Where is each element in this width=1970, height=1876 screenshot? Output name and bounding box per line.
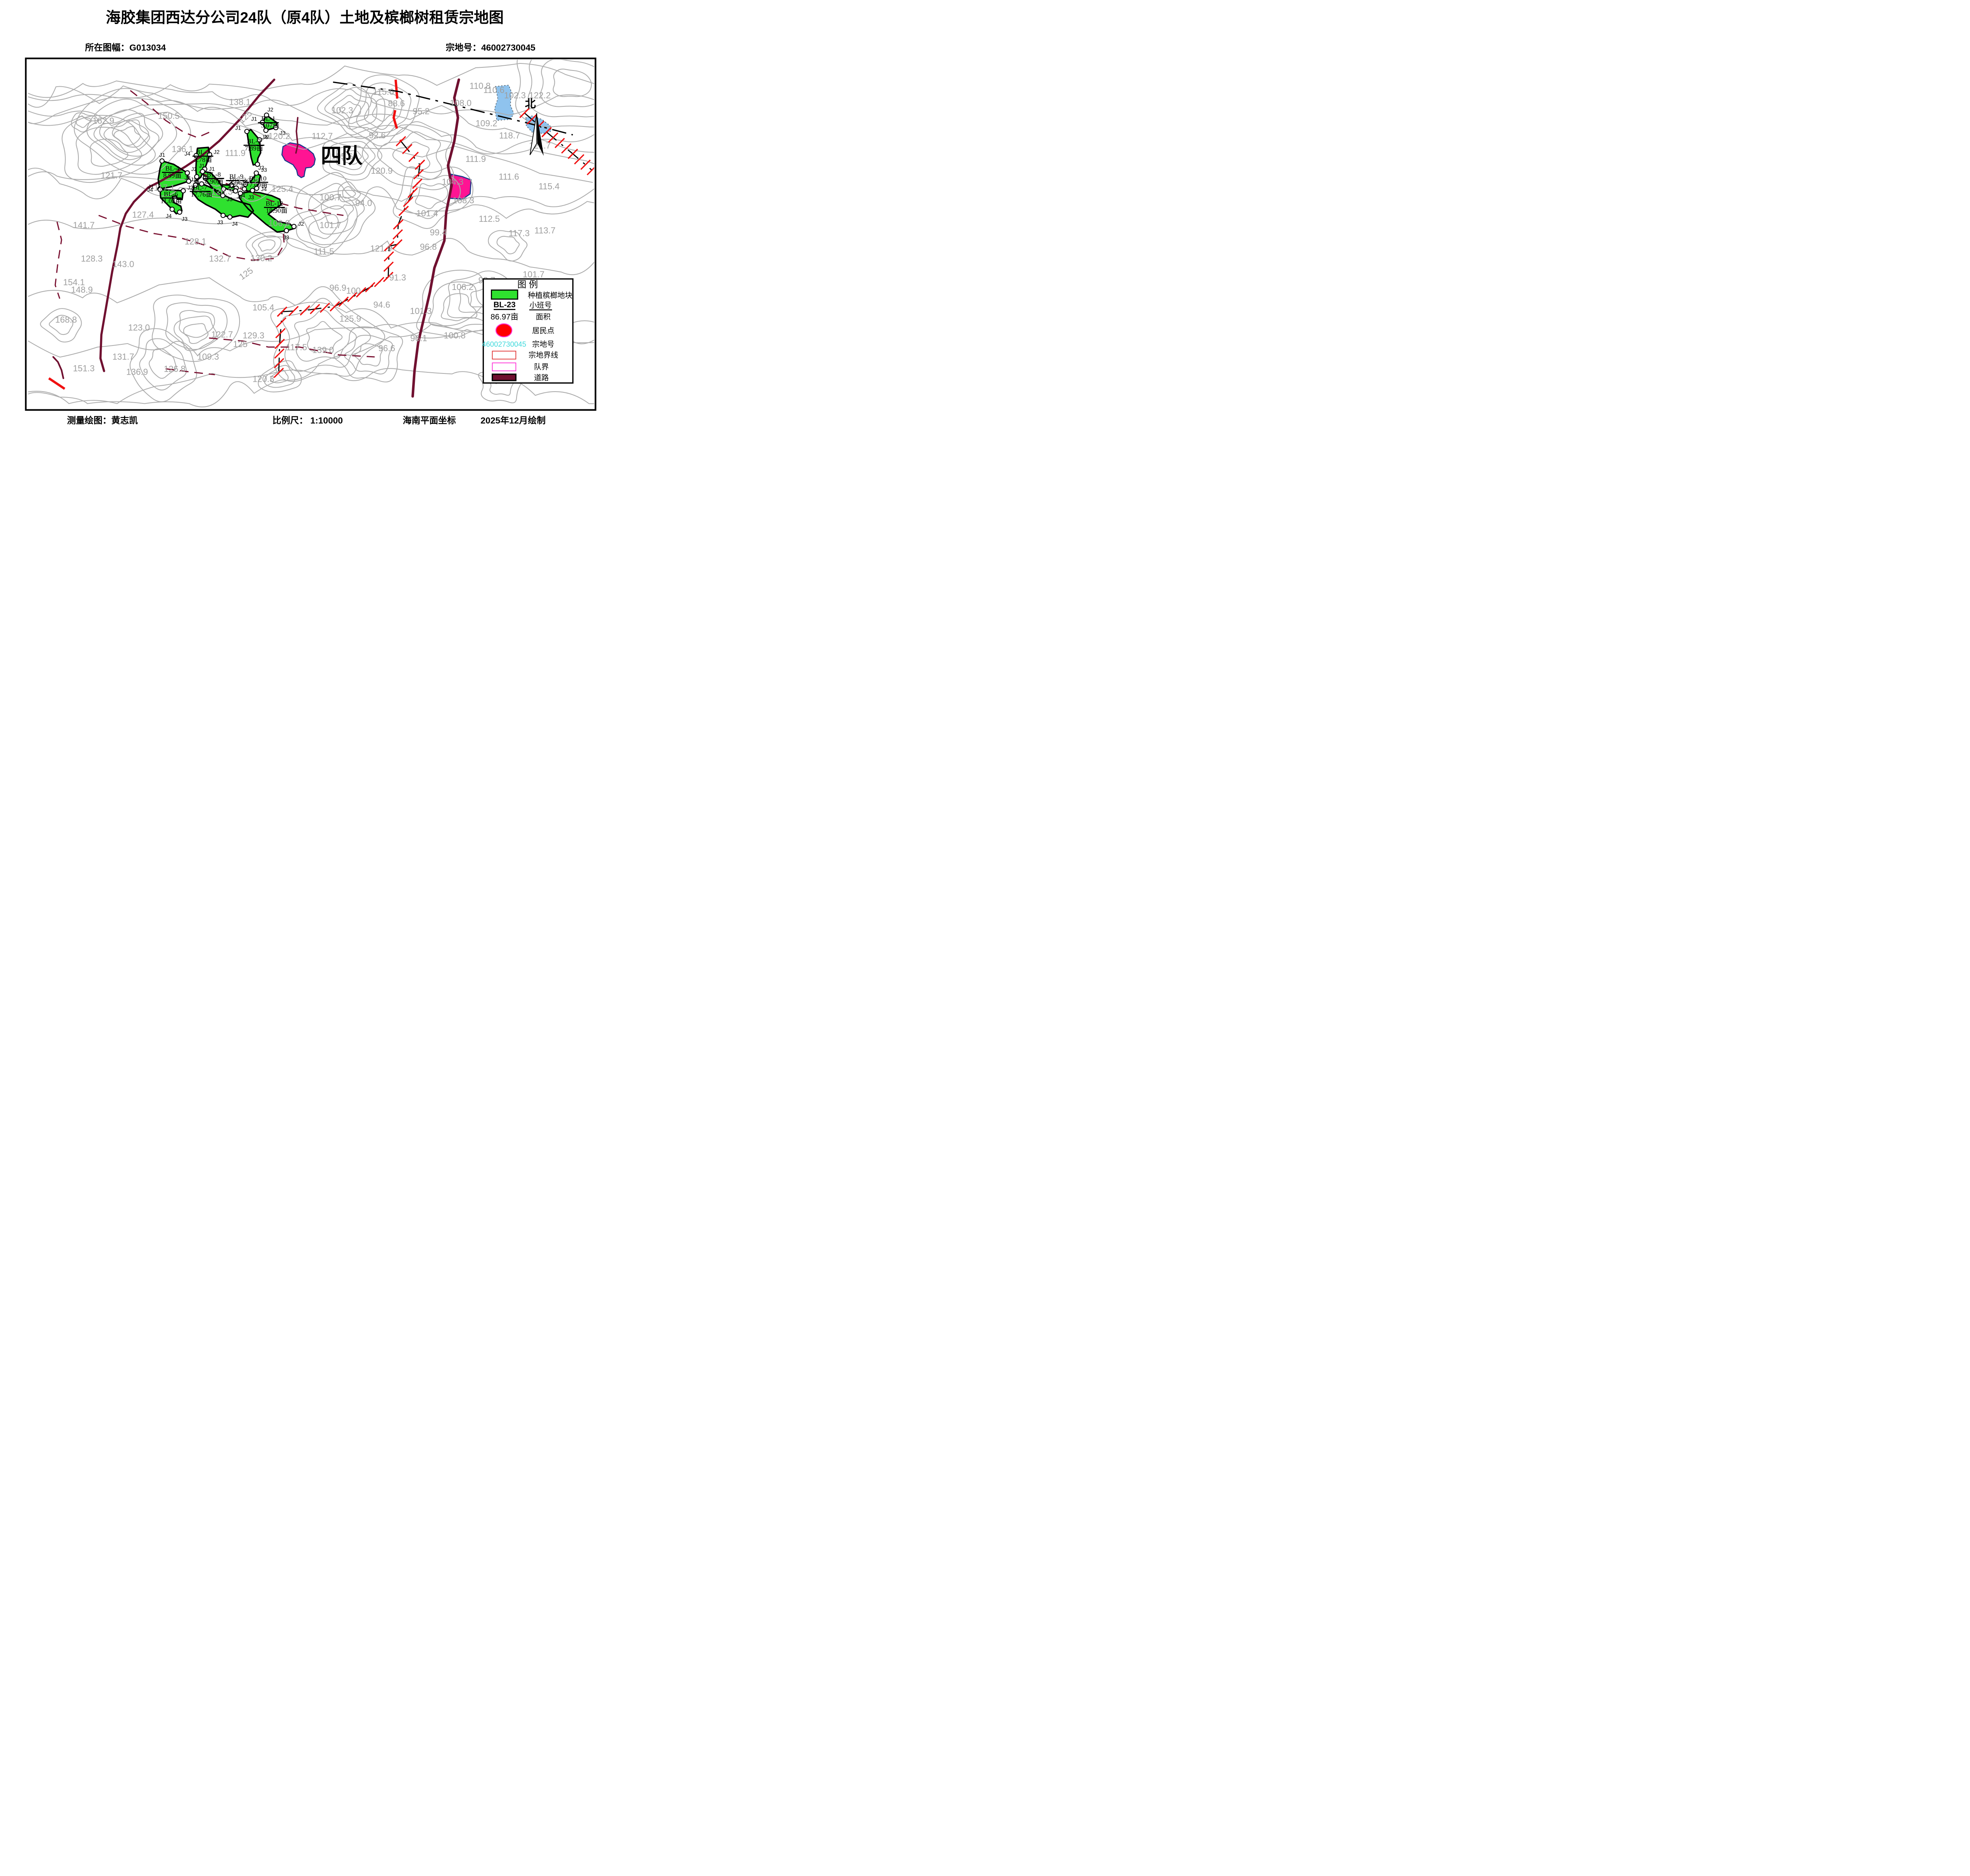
legend-title: 图 例 xyxy=(517,279,538,289)
elevation-label: 136.9 xyxy=(126,367,148,377)
parcel-id-label-BL-8: BL-8 xyxy=(207,171,221,178)
elevation-label: 106.2 xyxy=(452,282,474,292)
elevation-label: 96.1 xyxy=(410,333,427,343)
parcel-id-label-BL-12: BL-12 xyxy=(266,200,283,207)
elevation-label: 148.9 xyxy=(71,285,93,295)
legend-parcelno-label: 宗地号 xyxy=(532,340,555,348)
survey-point-label: J2 xyxy=(298,221,304,227)
elevation-label: 96.8 xyxy=(420,242,437,252)
elevation-label: 100.7 xyxy=(320,193,341,202)
survey-point-label: J3 xyxy=(248,194,254,201)
elevation-label: 111.9 xyxy=(465,154,486,164)
legend-area-label: 面积 xyxy=(536,312,551,321)
elevation-label: 121.2 xyxy=(237,176,259,186)
elevation-label: 92.6 xyxy=(369,130,386,140)
parcel-area-label-BL-2: 7.89亩 xyxy=(245,145,263,152)
elevation-label: 101.4 xyxy=(416,208,438,218)
legend-area-sample: 86.97亩 xyxy=(491,312,519,321)
elevation-label: 101.7 xyxy=(320,220,341,230)
elevation-label: 104.3 xyxy=(442,177,463,187)
elevation-label: 108.0 xyxy=(450,98,472,108)
survey-point-label: J3 xyxy=(182,216,188,223)
parcel-id-label-BL-2: BL-2 xyxy=(247,137,261,145)
elevation-label: 123.0 xyxy=(128,323,150,332)
elevation-label: 129.3 xyxy=(243,331,264,340)
elevation-label: 150.5 xyxy=(158,111,180,121)
elevation-label: 115.4 xyxy=(539,182,560,191)
elevation-label: 168.8 xyxy=(55,315,77,325)
elevation-label: 112.5 xyxy=(479,214,500,224)
legend-boundary-label: 宗地界线 xyxy=(528,351,558,359)
elevation-label: 125.9 xyxy=(339,314,361,324)
elevation-label: 132.7 xyxy=(209,254,231,264)
survey-point-label: J2 xyxy=(214,149,219,156)
elevation-label: 99.4 xyxy=(430,227,447,237)
page-title: 海胶集团西达分公司24队（原4队）土地及槟榔树租赁宗地图 xyxy=(106,9,504,26)
elevation-label: 121.9 xyxy=(370,244,392,254)
survey-point-label: J3 xyxy=(227,196,232,202)
survey-point-BL-6-J3 xyxy=(177,210,182,214)
elevation-label: 102.3 xyxy=(331,106,353,115)
elevation-label: 118.7 xyxy=(499,131,520,141)
elevation-label: 162.9 xyxy=(93,116,114,126)
coordinate-system-label: 海南平面坐标 xyxy=(403,415,456,425)
elevation-label: 111.5 xyxy=(314,247,334,256)
elevation-label: 141.7 xyxy=(73,220,95,230)
elevation-label: 117.3 xyxy=(509,228,530,238)
legend-plot-label: 种植槟榔地块 xyxy=(528,291,572,299)
parcel-map-svg: 海胶集团西达分公司24队（原4队）土地及槟榔树租赁宗地图 所在图幅：G01303… xyxy=(0,0,610,431)
survey-point-BL-7-J4 xyxy=(228,215,232,219)
parcel-area-label-BL-6: 11.03亩 xyxy=(160,197,182,205)
elevation-label: 96.9 xyxy=(329,283,346,293)
legend-team-boundary-label: 队界 xyxy=(534,362,549,371)
elevation-label: 127.4 xyxy=(132,210,154,220)
survey-point-label: J4 xyxy=(232,221,238,227)
elevation-label: 111.6 xyxy=(499,172,519,182)
elevation-label: 143.0 xyxy=(112,259,134,269)
survey-point-label: J2 xyxy=(268,107,273,113)
elevation-label: 139.0 xyxy=(312,345,334,355)
survey-point-BL-8-J1 xyxy=(201,169,205,174)
elevation-label: 91.3 xyxy=(389,273,406,282)
elevation-label: 121.7 xyxy=(100,171,122,180)
elevation-label: 108.3 xyxy=(452,195,474,205)
elevation-label: 126.3 xyxy=(211,187,232,197)
sheet-number-label: 所在图幅：G013034 xyxy=(85,43,166,53)
survey-point-label: J2 xyxy=(191,166,197,173)
elevation-label: 100.8 xyxy=(444,331,465,340)
elevation-label: 112.7 xyxy=(312,131,333,141)
legend: 图 例 种植槟榔地块 BL-23 小班号 86.97亩 面积 居民点 46002… xyxy=(482,279,573,383)
survey-point-BL-12-J2 xyxy=(292,224,296,228)
parcel-area-label-BL-4: 8.99亩 xyxy=(163,172,182,179)
team-four-label: 四队 xyxy=(321,145,362,168)
surveyor-label: 测量绘图：黄志凯 xyxy=(67,415,138,425)
survey-point-BL-4-J1 xyxy=(160,159,164,163)
legend-parcelno-sample: 46002730045 xyxy=(482,340,526,348)
parcel-id-label-BL-1: BL-1 xyxy=(261,115,275,123)
legend-boundary-swatch xyxy=(492,351,516,359)
survey-point-BL-12-J3 xyxy=(284,228,288,233)
elevation-label: 101.7 xyxy=(523,269,545,279)
parcel-area-label-BL-1: 3.07亩 xyxy=(261,122,279,129)
survey-point-BL-10-J3 xyxy=(250,188,255,193)
elevation-label: 111.9 xyxy=(225,148,245,158)
elevation-label: 94.0 xyxy=(355,198,372,208)
elevation-label: 96.6 xyxy=(378,343,395,353)
elevation-label: 88.6 xyxy=(388,98,405,108)
parcel-id-label-BL-3: BL-3 xyxy=(196,149,210,156)
survey-point-BL-7-J3 xyxy=(221,213,225,217)
elevation-label: 101.3 xyxy=(410,306,432,316)
survey-point-label: J1 xyxy=(235,125,241,131)
elevation-label: 122.7 xyxy=(211,330,233,340)
survey-point-label: J3 xyxy=(217,219,223,226)
elevation-label: 100 xyxy=(346,286,361,295)
elevation-label: 128.3 xyxy=(81,254,102,264)
north-label: 北 xyxy=(525,97,536,110)
parcel-area-label-BL-3: 3.78亩 xyxy=(194,156,212,163)
elevation-label: 120.2 xyxy=(268,131,290,141)
survey-point-BL-6-J2 xyxy=(181,189,186,193)
elevation-label: 151.3 xyxy=(73,363,95,373)
elevation-label: 109.2 xyxy=(476,119,497,128)
elevation-label: 115.6 xyxy=(373,87,394,97)
parcel-number-label: 宗地号：46002730045 xyxy=(446,43,535,53)
parcel-area-label-BL-7: 17.76亩 xyxy=(191,191,212,198)
draw-date-label: 2025年12月绘制 xyxy=(481,415,546,425)
parcel-area-label-BL-12: 18.90亩 xyxy=(266,207,288,214)
survey-point-BL-2-J1 xyxy=(245,129,249,134)
elevation-label: 125 xyxy=(233,339,247,349)
elevation-label: 125.4 xyxy=(271,184,293,194)
elevation-label: 117.1 xyxy=(154,183,175,193)
elevation-label: 109.3 xyxy=(197,352,219,362)
elevation-label: 138.1 xyxy=(229,97,251,107)
survey-point-BL-4-J3 xyxy=(186,179,191,183)
survey-point-BL-10-J4 xyxy=(242,187,247,191)
legend-resident-swatch xyxy=(496,324,512,337)
elevation-label: 131.7 xyxy=(112,352,134,362)
elevation-label: 94.6 xyxy=(373,300,390,310)
elevation-label: 120.3 xyxy=(253,374,274,384)
legend-class-sample: BL-23 xyxy=(493,301,515,309)
survey-point-BL-4-J2 xyxy=(185,171,190,175)
survey-point-label: J3 xyxy=(283,234,289,241)
legend-road-swatch xyxy=(492,374,516,381)
elevation-label: 106.9 xyxy=(268,218,290,228)
survey-point-label: J4 xyxy=(166,213,172,219)
elevation-label: 105.4 xyxy=(253,303,274,312)
elevation-label: 113.7 xyxy=(534,226,556,236)
elevation-label: 95.2 xyxy=(413,106,429,116)
scale-label: 比例尺： 1:10000 xyxy=(272,416,343,425)
survey-point-label: J2 xyxy=(187,185,193,191)
survey-point-BL-12-J2 xyxy=(233,189,238,193)
survey-point-label: J1 xyxy=(237,193,243,200)
survey-point-label: J1 xyxy=(191,176,197,183)
survey-point-label: J1 xyxy=(199,163,205,169)
survey-point-BL-6-J4 xyxy=(170,207,174,212)
survey-point-label: J2 xyxy=(258,165,264,171)
elevation-label: 110.6 xyxy=(483,85,505,95)
legend-resident-label: 居民点 xyxy=(532,326,555,334)
elevation-label: 120.9 xyxy=(371,166,392,176)
parcel-id-label-BL-7: BL-7 xyxy=(193,184,207,191)
parcel-area-label-BL-8: 6.90亩 xyxy=(205,178,224,185)
elevation-label: 126.8 xyxy=(164,364,186,374)
survey-point-label: J1 xyxy=(159,152,165,158)
parcel-id-label-BL-4: BL-4 xyxy=(165,165,180,172)
survey-point-label: J1 xyxy=(148,184,154,190)
legend-team-boundary-swatch xyxy=(492,363,516,371)
elevation-label: 117.5 xyxy=(286,342,307,352)
map-sheet: 海胶集团西达分公司24队（原4队）土地及槟榔树租赁宗地图 所在图幅：G01303… xyxy=(0,0,610,431)
elevation-label: 136.1 xyxy=(172,144,193,154)
elevation-label: 102.3 xyxy=(504,90,526,100)
elevation-label: 128.1 xyxy=(185,236,206,246)
elevation-label: 130.2 xyxy=(251,253,272,263)
legend-road-label: 道路 xyxy=(534,373,549,382)
legend-class-label: 小班号 xyxy=(530,301,552,309)
legend-plot-swatch xyxy=(491,290,518,299)
